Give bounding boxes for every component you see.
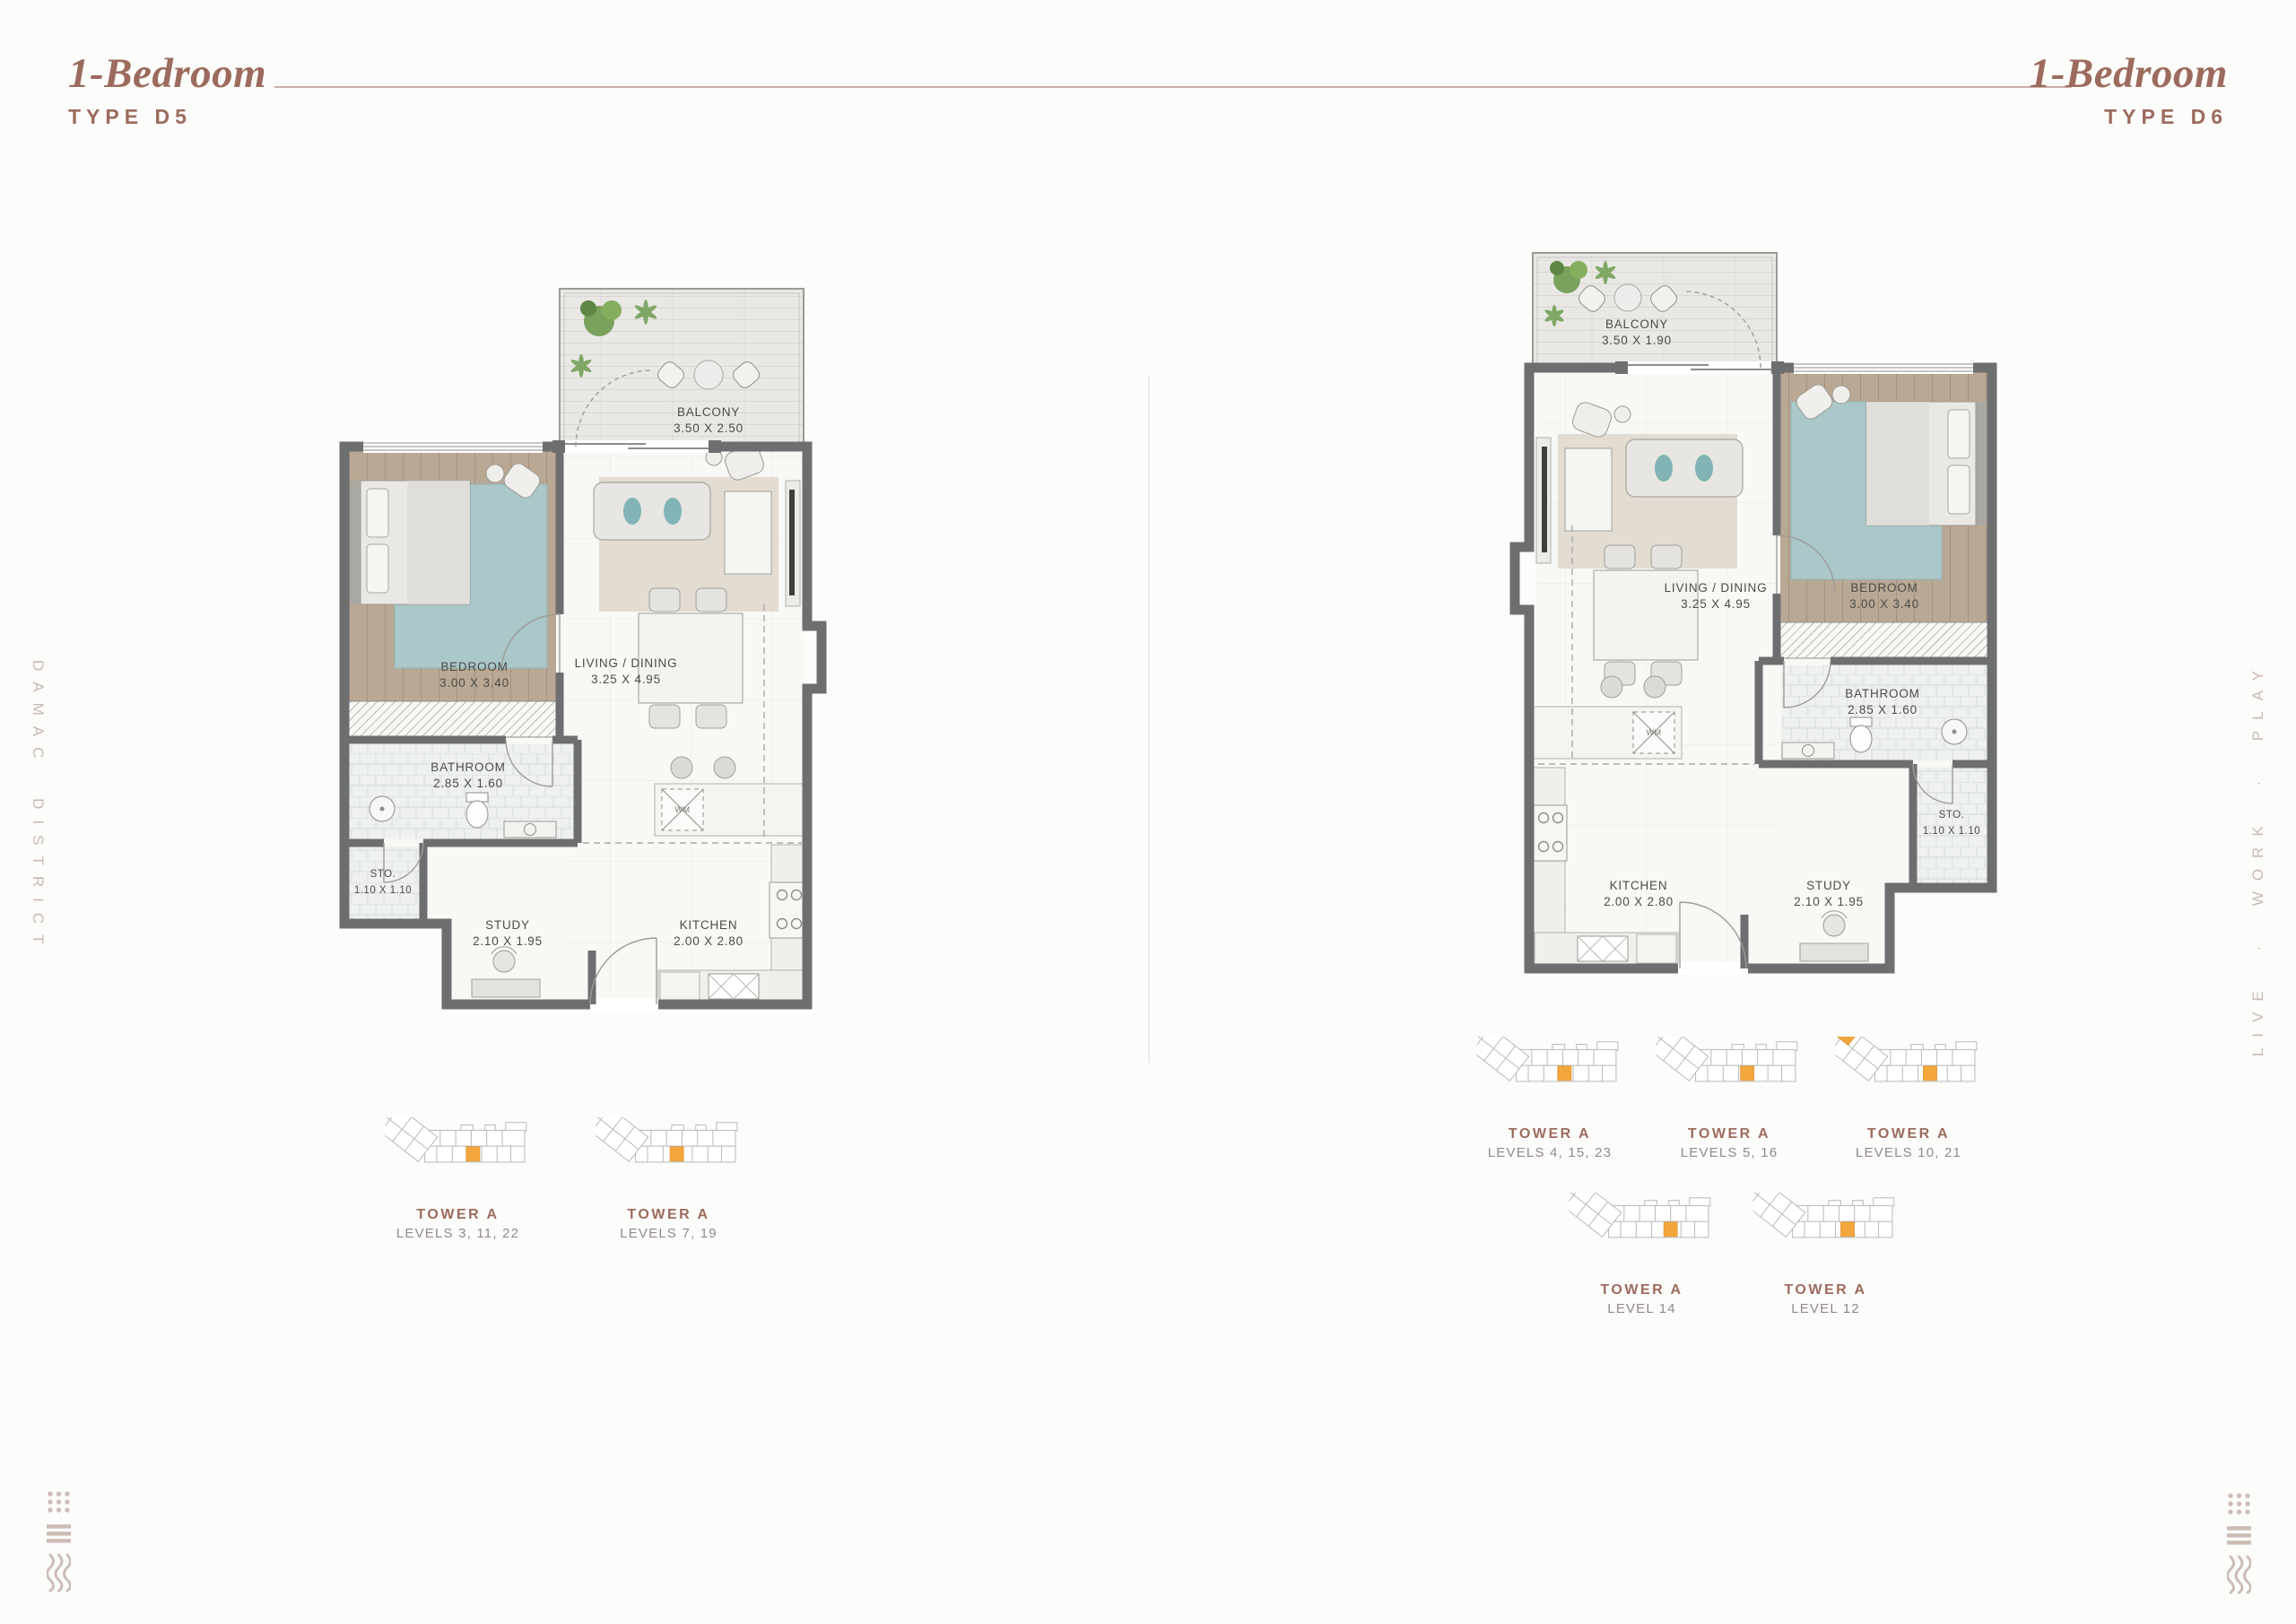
- tower-levels: LEVELS 4, 15, 23: [1460, 1145, 1639, 1160]
- kitchen-label: KITCHEN: [680, 918, 738, 932]
- tower-key-plan-map: [1827, 1037, 1990, 1123]
- tower-key-plans-d6-row1: TOWER A LEVELS 4, 15, 23 TOWER A LEVELS …: [1460, 1037, 1998, 1160]
- page-title-left: 1-Bedroom: [68, 52, 266, 96]
- tower-name: TOWER A: [366, 1207, 550, 1223]
- side-text-damac-district: DAMAC DISTRICT: [29, 660, 47, 955]
- sto-label: STO.: [1939, 810, 1965, 821]
- tower-key-plans-d5: TOWER A LEVELS 3, 11, 22 TOWER A LEVELS …: [366, 1117, 761, 1241]
- floor-plan-d6: BALCONY 3.50 X 1.90: [1484, 179, 2130, 977]
- damac-logo-mark: [47, 1490, 71, 1593]
- tower-key-plan-map: [1561, 1193, 1724, 1279]
- bedroom-label: BEDROOM: [1850, 581, 1918, 595]
- balcony: BALCONY 3.50 X 2.50: [560, 289, 804, 447]
- bathroom-label: BATHROOM: [1845, 687, 1919, 700]
- balcony-table-set: [1576, 282, 1679, 314]
- living-label: LIVING / DINING: [575, 656, 678, 670]
- tower-levels: LEVELS 3, 11, 22: [366, 1226, 550, 1241]
- bedroom-dims: 3.00 X 3.40: [439, 676, 509, 690]
- tower-key-plan-map: [377, 1117, 540, 1203]
- balcony-dims: 3.50 X 1.90: [1602, 334, 1672, 347]
- type-label-d6: TYPE D6: [2030, 105, 2228, 129]
- tower-levels: LEVELS 7, 19: [577, 1226, 761, 1241]
- tower-levels: LEVELS 5, 16: [1639, 1145, 1819, 1160]
- tower-name: TOWER A: [1734, 1282, 1918, 1298]
- kitchen-dims: 2.00 X 2.80: [674, 934, 744, 948]
- tower-key-item: TOWER A LEVELS 5, 16: [1639, 1037, 1819, 1160]
- balcony-label: BALCONY: [1605, 317, 1668, 331]
- tower-key-plan-map: [1468, 1037, 1631, 1123]
- brochure-page: 1-Bedroom TYPE D5 1-Bedroom TYPE D6 DAMA…: [0, 0, 2296, 1624]
- washing-machine: WM: [1633, 712, 1674, 753]
- page-title-right: 1-Bedroom: [2030, 52, 2228, 96]
- bathroom-label: BATHROOM: [430, 760, 505, 774]
- tower-levels: LEVELS 10, 21: [1819, 1145, 1998, 1160]
- tower-key-item: TOWER A LEVEL 12: [1734, 1193, 1918, 1316]
- living-dims: 3.25 X 4.95: [1681, 597, 1751, 611]
- tower-name: TOWER A: [1819, 1126, 1998, 1142]
- bathroom-dims: 2.85 X 1.60: [1848, 703, 1918, 716]
- center-divider: [1148, 377, 1150, 1063]
- study-label: STUDY: [1806, 879, 1851, 892]
- bathroom-dims: 2.85 X 1.60: [433, 777, 503, 790]
- balcony-dims: 3.50 X 2.50: [674, 421, 744, 435]
- wm-label: WM: [675, 805, 691, 814]
- tower-levels: LEVEL 14: [1550, 1301, 1734, 1316]
- tower-key-item: TOWER A LEVELS 10, 21: [1819, 1037, 1998, 1160]
- living-label: LIVING / DINING: [1665, 581, 1768, 595]
- living-dims: 3.25 X 4.95: [591, 673, 661, 686]
- floor-plan-d5: BALCONY 3.50 X 2.50: [206, 215, 852, 1013]
- tower-name: TOWER A: [1550, 1282, 1734, 1298]
- study-dims: 2.10 X 1.95: [1794, 895, 1864, 908]
- tower-key-item: TOWER A LEVELS 4, 15, 23: [1460, 1037, 1639, 1160]
- sto-dims: 1.10 X 1.10: [1923, 826, 1980, 837]
- tower-key-plan-map: [1744, 1193, 1908, 1279]
- balcony-label: BALCONY: [677, 405, 740, 419]
- sto-label: STO.: [370, 869, 396, 880]
- washing-machine: WM: [662, 789, 703, 830]
- tower-name: TOWER A: [577, 1207, 761, 1223]
- tower-name: TOWER A: [1639, 1126, 1819, 1142]
- tower-key-item: TOWER A LEVELS 7, 19: [577, 1117, 761, 1241]
- study-label: STUDY: [485, 918, 530, 932]
- tower-key-item: TOWER A LEVELS 3, 11, 22: [366, 1117, 550, 1241]
- tower-key-plan-map: [1648, 1037, 1811, 1123]
- balcony-table-set: [655, 359, 761, 390]
- kitchen-dims: 2.00 X 2.80: [1604, 895, 1674, 908]
- header-rule: [274, 86, 2072, 88]
- side-text-live-work-play: LIVE · WORK · PLAY: [2249, 660, 2267, 1056]
- type-label-d5: TYPE D5: [68, 105, 266, 129]
- tower-key-plans-d6-row2: TOWER A LEVEL 14 TOWER A LEVEL 12: [1550, 1193, 1918, 1316]
- sto-dims: 1.10 X 1.10: [354, 885, 412, 896]
- tower-key-item: TOWER A LEVEL 14: [1550, 1193, 1734, 1316]
- damac-logo-mark: [2227, 1492, 2251, 1594]
- tower-levels: LEVEL 12: [1734, 1301, 1918, 1316]
- kitchen-label: KITCHEN: [1610, 879, 1668, 892]
- wm-label: WM: [1647, 728, 1662, 737]
- tower-key-plan-map: [587, 1117, 751, 1203]
- study-dims: 2.10 X 1.95: [473, 934, 543, 948]
- tower-name: TOWER A: [1460, 1126, 1639, 1142]
- bedroom-dims: 3.00 X 3.40: [1849, 597, 1919, 611]
- balcony: BALCONY 3.50 X 1.90: [1533, 253, 1777, 368]
- bedroom-label: BEDROOM: [440, 660, 508, 673]
- title-block-d6: 1-Bedroom TYPE D6: [2030, 52, 2228, 129]
- title-block-d5: 1-Bedroom TYPE D5: [68, 52, 266, 129]
